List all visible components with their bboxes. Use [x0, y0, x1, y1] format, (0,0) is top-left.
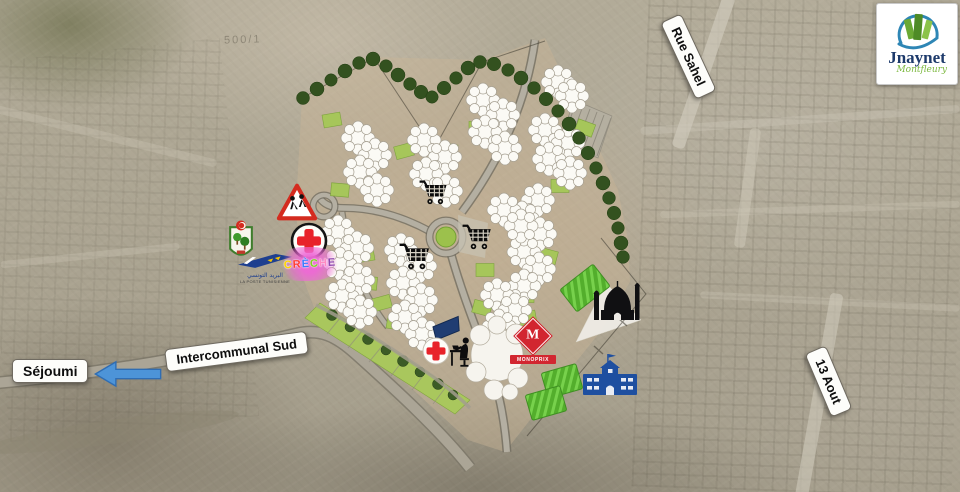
jnaynet-logo-card: Jnaynet Montfleury [876, 3, 958, 85]
satellite-masterplan-map: البريد التونسي LA POSTE TUNISIENNE CRÈCH… [0, 0, 960, 492]
pharmacy-cross-icon [423, 338, 449, 364]
site-plan-layer [0, 0, 960, 492]
children-crossing-sign [276, 183, 318, 226]
road-label-sejoumi: Séjoumi [12, 359, 88, 383]
jnaynet-logo-mark [891, 7, 943, 51]
left-arrow-icon [92, 360, 164, 388]
monoprix-diamond: M [515, 318, 552, 355]
creche-label: CRÈCHE [281, 249, 339, 279]
monoprix-initial: M [526, 328, 539, 344]
logo-title: Jnaynet [888, 49, 946, 66]
monoprix-logo: M MONOPRIX [510, 320, 556, 364]
creche-text: CRÈCHE [280, 248, 339, 281]
scale-watermark: 500/1 [224, 33, 262, 46]
monoprix-name: MONOPRIX [510, 355, 556, 364]
logo-tagline: Montfleury [896, 65, 957, 75]
